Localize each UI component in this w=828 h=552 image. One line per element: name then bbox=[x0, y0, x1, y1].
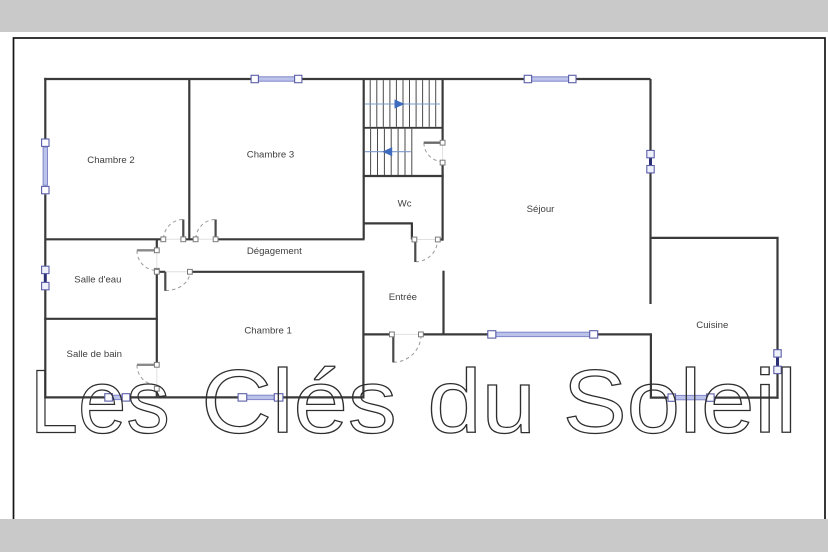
svg-text:Chambre 1: Chambre 1 bbox=[244, 325, 291, 336]
svg-text:Cuisine: Cuisine bbox=[696, 320, 728, 331]
svg-text:du: du bbox=[427, 351, 535, 452]
svg-text:Les: Les bbox=[30, 351, 170, 452]
svg-text:Séjour: Séjour bbox=[527, 204, 556, 215]
svg-text:Clés: Clés bbox=[201, 351, 397, 452]
svg-text:Chambre 2: Chambre 2 bbox=[87, 155, 134, 166]
svg-text:Soleil: Soleil bbox=[563, 351, 797, 452]
svg-text:Entrée: Entrée bbox=[389, 292, 417, 303]
svg-text:Salle d'eau: Salle d'eau bbox=[74, 275, 121, 286]
svg-text:Dégagement: Dégagement bbox=[247, 246, 302, 257]
svg-text:Chambre 3: Chambre 3 bbox=[247, 150, 294, 161]
svg-text:Wc: Wc bbox=[398, 199, 412, 210]
